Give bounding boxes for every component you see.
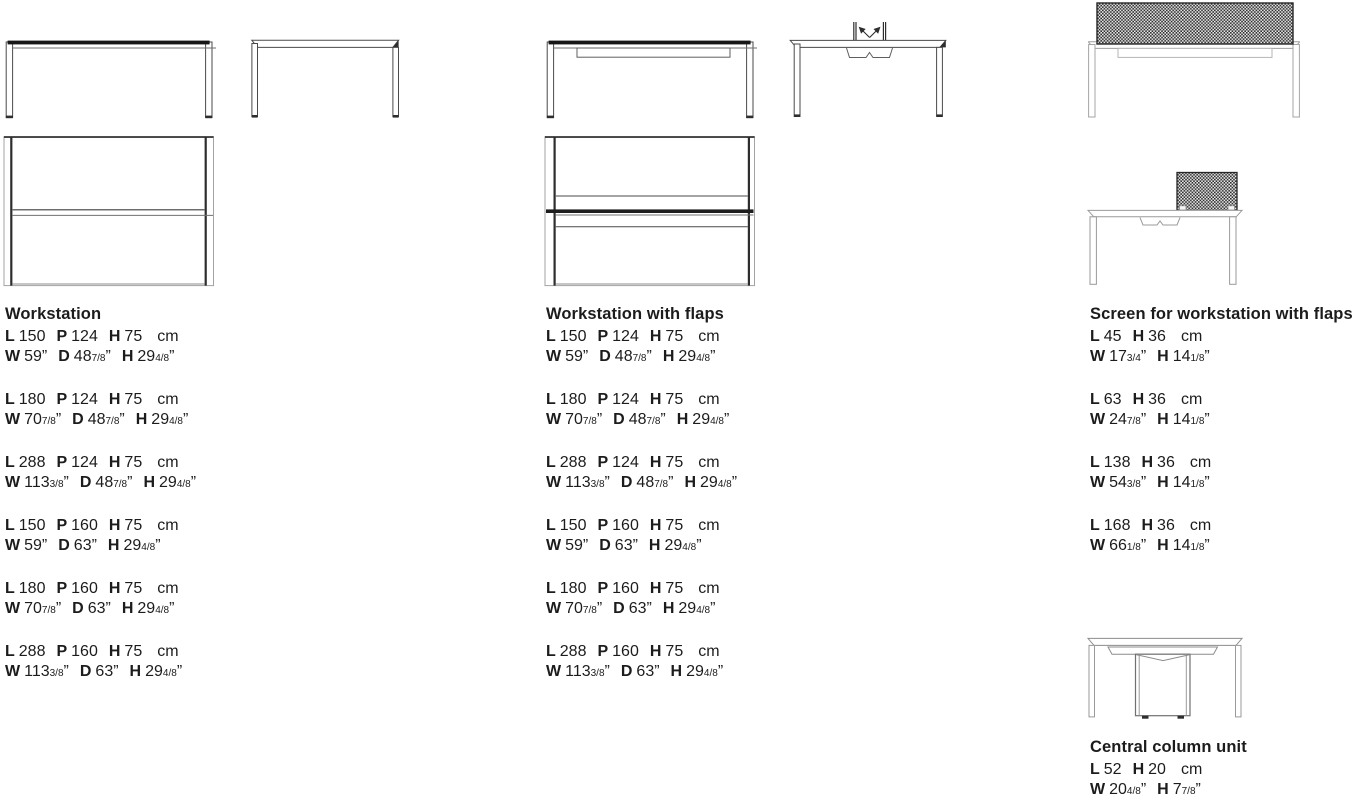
dimension-H: H75 [650,454,683,471]
spec-line-in: W661/8”H141/8” [1090,536,1355,558]
dimension-W: W59” [546,537,588,554]
dimension-P: P124 [56,454,97,471]
spec-line-in: W707/8”D487/8”H294/8” [5,410,425,432]
section-title-workstation: Workstation [5,304,425,325]
spec-line-in: W1133/8”D63”H294/8” [546,662,966,684]
spec-line-cm: L180P124H75cm [5,390,425,410]
dimension-H: H75 [650,391,683,408]
spec-line-cm: L288P124H75cm [5,453,425,473]
dimension-P: P124 [597,391,638,408]
dimension-H: H75 [650,517,683,534]
workstation-front-view-drawing [5,36,217,122]
spec-group: L180P124H75cmW707/8”D487/8”H294/8” [5,390,425,432]
dimension-H: H75 [109,454,142,471]
dimension-W: W173/4” [1090,348,1146,365]
dimension-L: L180 [546,580,586,597]
dimension-L: L180 [5,580,45,597]
dimension-D: D63” [613,600,652,617]
spec-line-in: W1133/8”D63”H294/8” [5,662,425,684]
dimension-H: H141/8” [1157,411,1210,428]
section-title-workstation-with-flaps: Workstation with flaps [546,304,966,325]
dimension-D: D487/8” [80,474,133,491]
section-title-screen-for-workstation: Screen for workstation with flaps [1090,304,1355,325]
dimension-W: W707/8” [546,411,602,428]
spec-line-cm: L288P124H75cm [546,453,966,473]
spec-line-in: W707/8”D63”H294/8” [546,599,966,621]
spec-line-cm: L52H20cm [1090,760,1355,780]
dimension-W: W661/8” [1090,537,1146,554]
spec-group: L288P124H75cmW1133/8”D487/8”H294/8” [546,453,966,495]
spec-line-cm: L150P124H75cm [546,327,966,347]
dimension-P: P160 [56,643,97,660]
spec-line-cm: L45H36cm [1090,327,1355,347]
dimension-W: W59” [5,537,47,554]
spec-line-in: W59”D487/8”H294/8” [546,347,966,369]
spec-line-in: W707/8”D63”H294/8” [5,599,425,621]
workstation-flaps-side-view-drawing [788,16,948,122]
dimension-L: L138 [1090,454,1130,471]
spec-line-in: W1133/8”D487/8”H294/8” [5,473,425,495]
dimension-H: H75 [650,580,683,597]
dimension-W: W707/8” [546,600,602,617]
dimension-L: L52 [1090,761,1122,778]
central-column-unit-drawing [1086,626,1244,722]
dimension-H: H36 [1141,517,1174,534]
dimension-H: H36 [1141,454,1174,471]
spec-list-workstation-with-flaps: L150P124H75cmW59”D487/8”H294/8”L180P124H… [546,327,966,684]
dimension-L: L168 [1090,517,1130,534]
dimension-L: L180 [546,391,586,408]
spec-group: L180P160H75cmW707/8”D63”H294/8” [546,579,966,621]
dimension-L: L150 [5,328,45,345]
dimension-L: L288 [546,643,586,660]
dimension-W: W204/8” [1090,781,1146,798]
spec-group: L150P160H75cmW59”D63”H294/8” [546,516,966,558]
spec-line-cm: L63H36cm [1090,390,1355,410]
dimension-H: H294/8” [684,474,737,491]
dimension-L: L45 [1090,328,1122,345]
dimension-H: H75 [109,517,142,534]
spec-group: L63H36cmW247/8”H141/8” [1090,390,1355,432]
spec-group: L168H36cmW661/8”H141/8” [1090,516,1355,558]
dimension-L: L150 [546,328,586,345]
workstation-side-view-drawing [248,36,403,122]
dimension-D: D487/8” [72,411,125,428]
spec-group: L138H36cmW543/8”H141/8” [1090,453,1355,495]
spec-line-cm: L180P124H75cm [546,390,966,410]
dimension-H: H77/8” [1157,781,1201,798]
dimension-H: H294/8” [122,348,175,365]
spec-group: L180P160H75cmW707/8”D63”H294/8” [5,579,425,621]
spec-group: L150P124H75cmW59”D487/8”H294/8” [5,327,425,369]
dimension-H: H36 [1133,328,1166,345]
section-screen-for-workstation: Screen for workstation with flaps L45H36… [1090,304,1355,579]
dimension-H: H36 [1133,391,1166,408]
spec-line-in: W204/8”H77/8” [1090,780,1355,800]
spec-group: L150P160H75cmW59”D63”H294/8” [5,516,425,558]
dimension-H: H294/8” [108,537,161,554]
dimension-L: L288 [546,454,586,471]
dimension-L: L150 [546,517,586,534]
dimension-P: P160 [597,580,638,597]
dimension-H: H141/8” [1157,348,1210,365]
spec-line-cm: L288P160H75cm [546,642,966,662]
spec-group: L288P160H75cmW1133/8”D63”H294/8” [5,642,425,684]
dimension-L: L180 [5,391,45,408]
dimension-H: H294/8” [649,537,702,554]
dimension-P: P160 [597,517,638,534]
dimension-W: W59” [5,348,47,365]
dimension-H: H141/8” [1157,537,1210,554]
dimension-D: D487/8” [621,474,674,491]
spec-line-cm: L150P124H75cm [5,327,425,347]
dimension-P: P124 [597,328,638,345]
dimension-H: H75 [109,643,142,660]
dimension-D: D487/8” [599,348,652,365]
spec-line-in: W59”D63”H294/8” [546,536,966,558]
dimension-H: H294/8” [143,474,196,491]
dimension-P: P124 [597,454,638,471]
spec-line-cm: L138H36cm [1090,453,1355,473]
spec-list-workstation: L150P124H75cmW59”D487/8”H294/8”L180P124H… [5,327,425,684]
dimension-H: H294/8” [136,411,189,428]
dimension-H: H75 [109,391,142,408]
dimension-W: W247/8” [1090,411,1146,428]
spec-line-in: W59”D63”H294/8” [5,536,425,558]
catalog-spec-page: Workstation L150P124H75cmW59”D487/8”H294… [0,0,1355,800]
workstation-flaps-front-view-drawing [546,36,758,122]
dimension-H: H75 [109,580,142,597]
spec-line-cm: L150P160H75cm [546,516,966,536]
dimension-D: D63” [58,537,97,554]
dimension-H: H141/8” [1157,474,1210,491]
dimension-H: H75 [650,328,683,345]
spec-line-in: W1133/8”D487/8”H294/8” [546,473,966,495]
dimension-W: W1133/8” [546,663,610,680]
dimension-L: L63 [1090,391,1122,408]
spec-group: L45H36cmW173/4”H141/8” [1090,327,1355,369]
dimension-P: P160 [56,517,97,534]
dimension-H: H294/8” [122,600,175,617]
dimension-D: D63” [599,537,638,554]
dimension-P: P124 [56,391,97,408]
spec-group: L52H20cmW204/8”H77/8” [1090,760,1355,800]
dimension-H: H294/8” [671,663,724,680]
dimension-P: P160 [56,580,97,597]
dimension-W: W543/8” [1090,474,1146,491]
dimension-W: W59” [546,348,588,365]
dimension-L: L288 [5,643,45,660]
spec-line-in: W247/8”H141/8” [1090,410,1355,432]
dimension-H: H294/8” [663,348,716,365]
section-workstation-with-flaps: Workstation with flaps L150P124H75cmW59”… [546,304,966,705]
dimension-P: P160 [597,643,638,660]
dimension-H: H294/8” [130,663,183,680]
workstation-flaps-elevation-drawing [544,134,758,288]
dimension-H: H75 [109,328,142,345]
dimension-W: W1133/8” [5,474,69,491]
spec-line-cm: L168H36cm [1090,516,1355,536]
dimension-W: W1133/8” [546,474,610,491]
dimension-D: D63” [621,663,660,680]
spec-line-cm: L180P160H75cm [5,579,425,599]
dimension-H: H75 [650,643,683,660]
dimension-H: H294/8” [663,600,716,617]
spec-group: L150P124H75cmW59”D487/8”H294/8” [546,327,966,369]
dimension-D: D63” [72,600,111,617]
screen-on-workstation-side-view-drawing [1086,166,1244,290]
dimension-W: W1133/8” [5,663,69,680]
workstation-elevation-drawing [3,134,217,288]
spec-line-in: W59”D487/8”H294/8” [5,347,425,369]
spec-line-in: W173/4”H141/8” [1090,347,1355,369]
spec-list-central-column-unit: L52H20cmW204/8”H77/8” [1090,760,1355,800]
dimension-W: W707/8” [5,600,61,617]
spec-group: L288P124H75cmW1133/8”D487/8”H294/8” [5,453,425,495]
dimension-H: H294/8” [677,411,730,428]
section-title-central-column-unit: Central column unit [1090,737,1355,758]
spec-line-in: W543/8”H141/8” [1090,473,1355,495]
spec-line-in: W707/8”D487/8”H294/8” [546,410,966,432]
dimension-H: H20 [1133,761,1166,778]
spec-list-screen-for-workstation: L45H36cmW173/4”H141/8”L63H36cmW247/8”H14… [1090,327,1355,558]
dimension-D: D487/8” [613,411,666,428]
spec-line-cm: L180P160H75cm [546,579,966,599]
dimension-D: D63” [80,663,119,680]
section-central-column-unit: Central column unit L52H20cmW204/8”H77/8… [1090,737,1355,800]
dimension-L: L150 [5,517,45,534]
dimension-D: D487/8” [58,348,111,365]
section-workstation: Workstation L150P124H75cmW59”D487/8”H294… [5,304,425,705]
screen-on-workstation-front-view-drawing [1086,0,1302,120]
dimension-L: L288 [5,454,45,471]
spec-line-cm: L288P160H75cm [5,642,425,662]
spec-group: L288P160H75cmW1133/8”D63”H294/8” [546,642,966,684]
dimension-W: W707/8” [5,411,61,428]
spec-line-cm: L150P160H75cm [5,516,425,536]
dimension-P: P124 [56,328,97,345]
spec-group: L180P124H75cmW707/8”D487/8”H294/8” [546,390,966,432]
